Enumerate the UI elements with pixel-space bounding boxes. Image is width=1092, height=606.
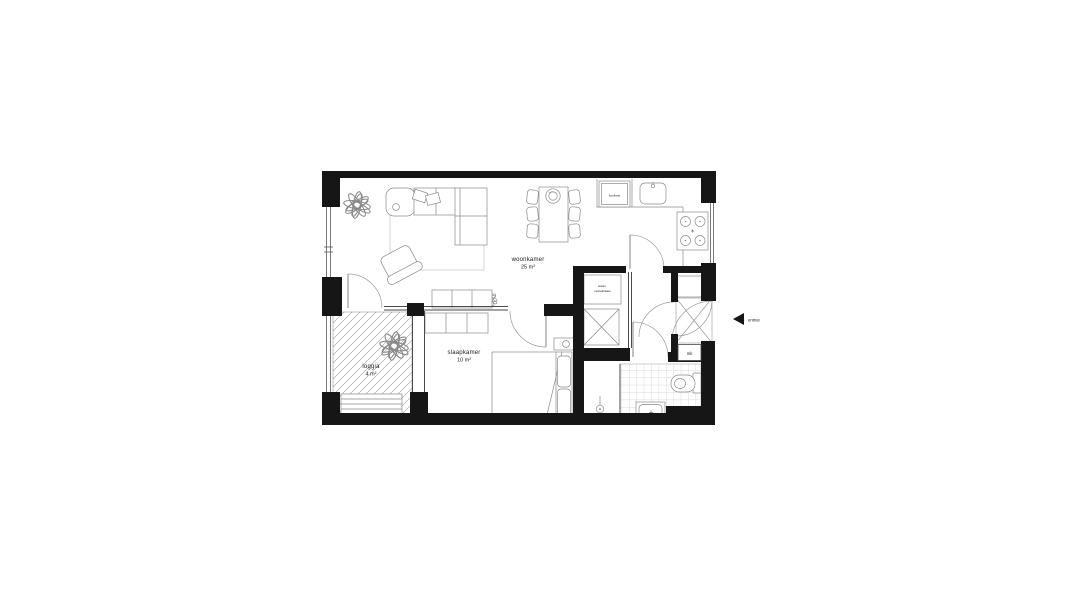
dining-chair xyxy=(568,207,580,222)
corner-sofa xyxy=(386,188,487,245)
fridge: koelkast xyxy=(599,181,630,207)
wardrobe xyxy=(425,313,488,333)
dining-chair xyxy=(526,207,538,222)
window xyxy=(711,202,714,263)
entrance-label: entree xyxy=(748,318,761,323)
washer-label-line2: opstelplaats xyxy=(594,289,611,293)
plant-icon xyxy=(343,191,371,219)
entrance-marker: entree xyxy=(733,313,761,325)
room-area-woonkamer: 25 m² xyxy=(521,265,535,271)
sideboard xyxy=(432,290,492,308)
dining-table xyxy=(539,187,568,242)
dining-chair xyxy=(569,224,581,239)
kitchen-counter: koelkast xyxy=(597,179,711,267)
door-arc xyxy=(639,302,674,337)
room-area-slaapkamer: 10 m² xyxy=(457,358,471,364)
door-arc xyxy=(510,311,546,347)
fridge-label: koelkast xyxy=(609,194,620,198)
washer-label-line1: wasm. xyxy=(598,284,607,288)
washing-machine xyxy=(584,309,619,345)
dining-chair xyxy=(526,189,538,204)
toilet xyxy=(671,373,701,393)
floorplan-canvas: koelkast xyxy=(0,0,1092,606)
meter-cupboard-label: mk xyxy=(687,351,693,356)
loggia-bench xyxy=(341,394,402,414)
door-arc xyxy=(633,322,668,357)
dining-set xyxy=(526,187,580,242)
room-label-loggia: loggia xyxy=(362,364,380,370)
stove xyxy=(677,212,708,250)
floorplan-drawing: koelkast xyxy=(0,0,1092,606)
washer-room: wasm. opstelplaats xyxy=(584,275,621,345)
shower-head-icon xyxy=(596,396,604,413)
dining-chair xyxy=(527,224,539,239)
loggia-glazing xyxy=(327,316,331,392)
room-label-slaapkamer: slaapkamer xyxy=(447,350,480,356)
armchair xyxy=(377,242,424,285)
bedside-shelf xyxy=(554,338,574,350)
door-arc xyxy=(348,274,382,308)
room-area-loggia: 4 m² xyxy=(366,372,377,378)
kitchen-sink xyxy=(640,182,666,204)
dining-chair xyxy=(568,189,580,204)
meter-cupboard: mk xyxy=(678,345,701,361)
window xyxy=(324,206,333,277)
bed xyxy=(492,352,572,423)
entrance-arrow-icon xyxy=(733,313,744,325)
door-arc xyxy=(630,235,664,269)
pillow xyxy=(558,356,571,387)
room-label-woonkamer: woonkamer xyxy=(511,257,545,263)
bedroom-furniture xyxy=(425,313,574,423)
